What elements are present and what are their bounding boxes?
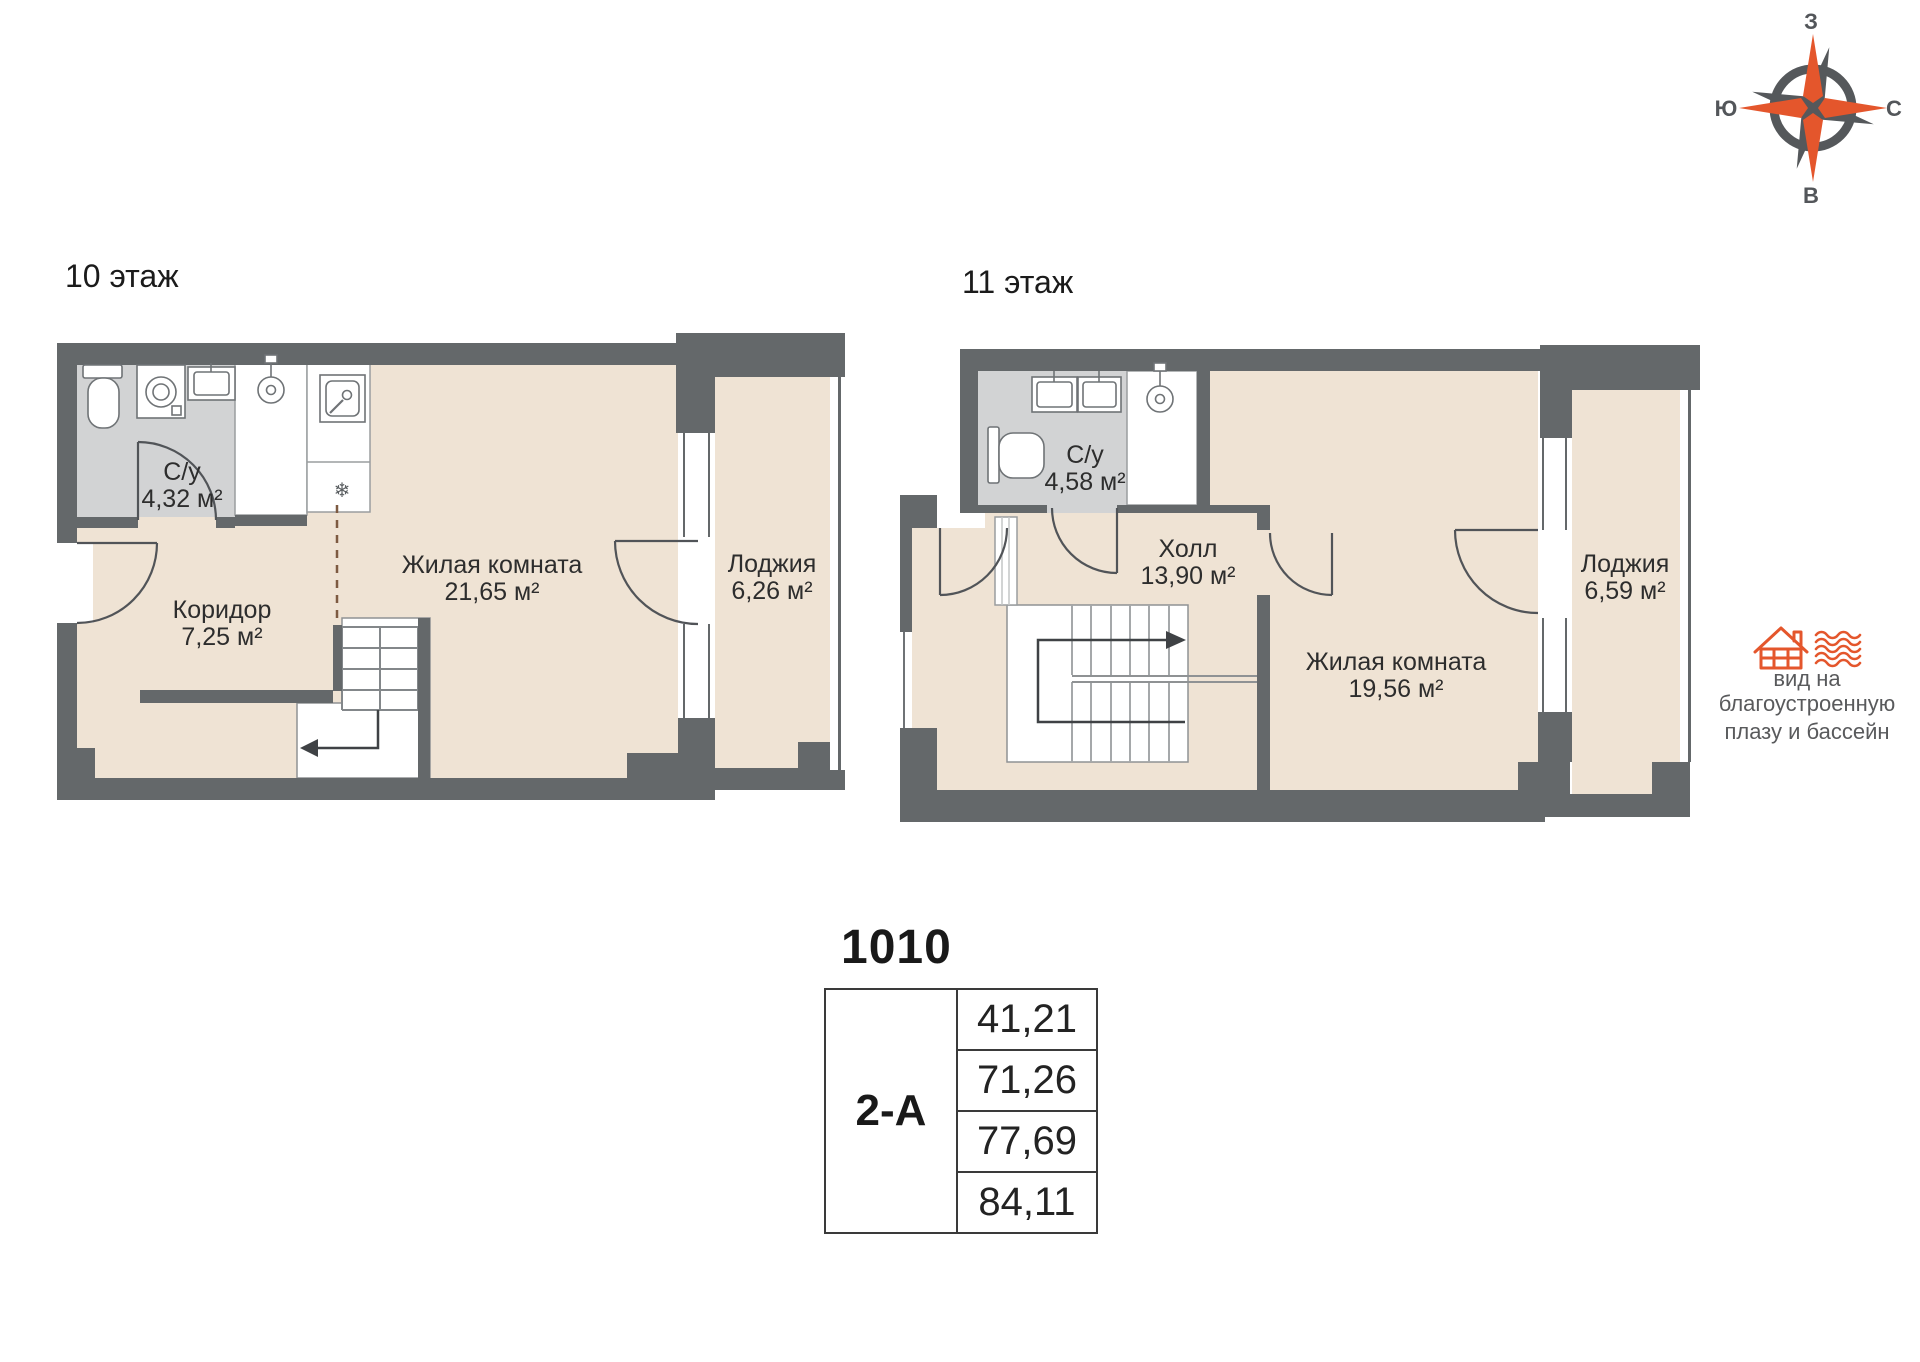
room-label-hall-11: Холл 13,90 м² [1140, 536, 1235, 590]
entry-11-door-gap [937, 513, 985, 528]
unit-layout-cell: 2-А [826, 990, 958, 1232]
room-area: 6,59 м² [1581, 578, 1670, 605]
room-area: 21,65 м² [402, 579, 583, 606]
room-name: Жилая комната [1306, 649, 1487, 676]
floor-11-label: 11 этаж [962, 264, 1073, 301]
kitchen-sink-icon [320, 375, 365, 422]
room-label-bathroom-11: С/у 4,58 м² [1044, 442, 1125, 496]
snowflake-icon: ❄ [334, 480, 351, 502]
compass-letter-south: Ю [1715, 96, 1738, 122]
room-label-bathroom-10: С/у 4,32 м² [141, 459, 222, 513]
room-name: Коридор [173, 597, 272, 624]
room-area: 4,32 м² [141, 486, 222, 513]
compass-letter-east: В [1803, 183, 1819, 209]
toilet-icon [988, 427, 1044, 483]
room-area: 7,25 м² [173, 624, 272, 651]
bathroom-sink-icon [1078, 371, 1121, 412]
loggia-10-window [830, 377, 845, 770]
house-icon [1755, 628, 1807, 668]
room-label-corridor-10: Коридор 7,25 м² [173, 597, 272, 651]
room-area: 19,56 м² [1306, 676, 1487, 703]
room-label-loggia-11: Лоджия 6,59 м² [1581, 551, 1670, 605]
unit-info-table: 2-А 41,21 71,26 77,69 84,11 [824, 988, 1098, 1234]
room-label-living-10: Жилая комната 21,65 м² [402, 552, 583, 606]
room-name: Лоджия [728, 551, 817, 578]
view-note-line: вид на [1707, 666, 1907, 691]
floorplan-page: { "compass": {"top": "З", "right": "С", … [0, 0, 1920, 1362]
view-note-line: плазу и бассейн [1707, 719, 1907, 744]
room-name: Холл [1140, 536, 1235, 563]
view-badge-icons [1755, 628, 1860, 668]
bathroom-sink-icon [188, 363, 235, 400]
loggia-11-window [1680, 390, 1700, 762]
washing-machine-icon [137, 365, 185, 418]
floor-11-plan [898, 345, 1700, 822]
unit-area-value: 84,11 [958, 1173, 1096, 1232]
room-name: С/у [141, 459, 222, 486]
room-area: 13,90 м² [1140, 563, 1235, 590]
compass-letter-west: З [1804, 9, 1818, 35]
view-note-line: благоустроенную [1707, 691, 1907, 716]
unit-area-value: 71,26 [958, 1051, 1096, 1112]
compass-rose-icon [1736, 31, 1890, 185]
room-label-loggia-10: Лоджия 6,26 м² [728, 551, 817, 605]
compass-letter-north: С [1886, 96, 1902, 122]
toilet-icon [83, 365, 122, 428]
hall-left-window [898, 632, 912, 728]
view-note: вид на благоустроенную плазу и бассейн [1707, 666, 1907, 744]
room-label-living-11: Жилая комната 19,56 м² [1306, 649, 1487, 703]
living-loggia-10-windows [678, 433, 715, 718]
waves-icon [1816, 632, 1860, 666]
floor-10-label: 10 этаж [65, 258, 179, 295]
room-name: Жилая комната [402, 552, 583, 579]
room-area: 4,58 м² [1044, 469, 1125, 496]
unit-number: 1010 [841, 920, 952, 975]
unit-area-value: 41,21 [958, 990, 1096, 1051]
unit-area-column: 41,21 71,26 77,69 84,11 [958, 990, 1096, 1232]
room-name: С/у [1044, 442, 1125, 469]
living-loggia-11-windows [1538, 438, 1572, 712]
room-area: 6,26 м² [728, 578, 817, 605]
bathroom-sink-icon [1032, 371, 1077, 412]
room-name: Лоджия [1581, 551, 1670, 578]
unit-area-value: 77,69 [958, 1112, 1096, 1173]
